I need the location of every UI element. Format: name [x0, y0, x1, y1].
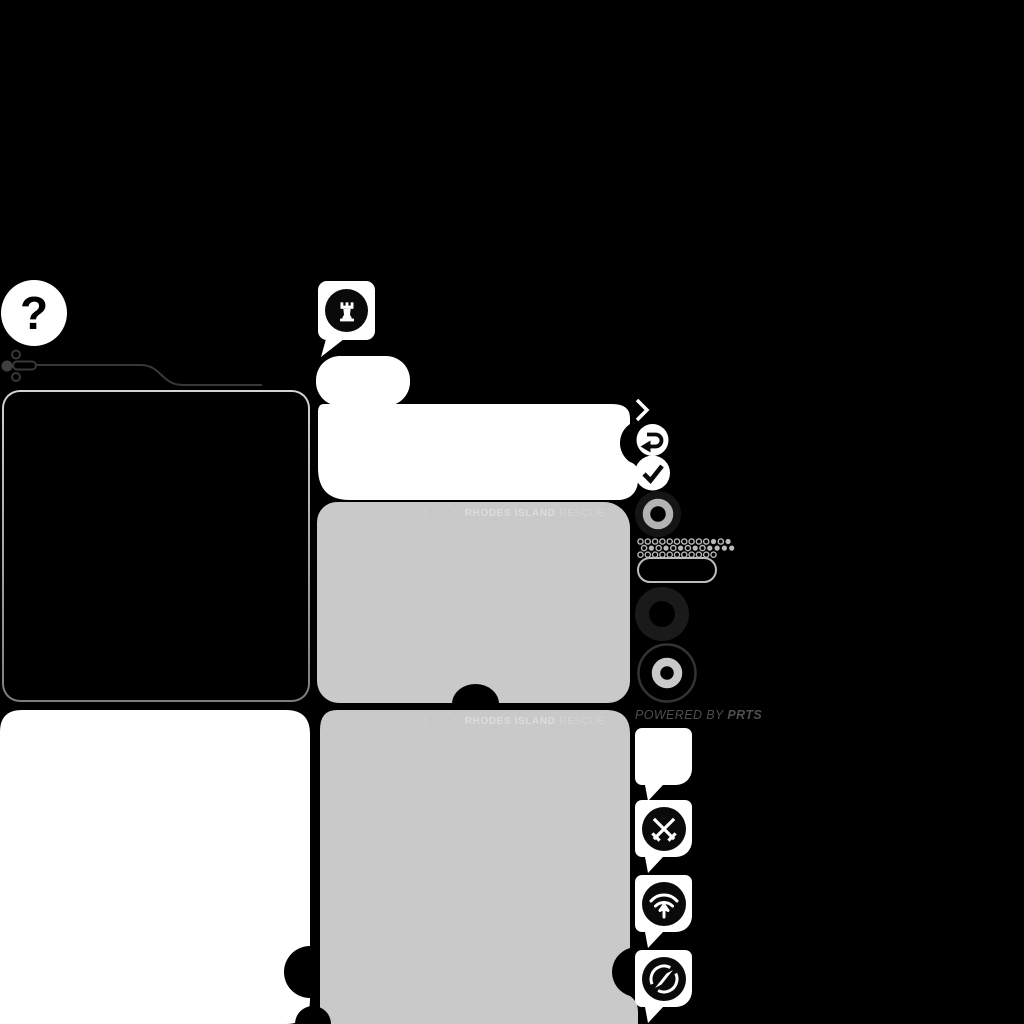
notification-bubble-network[interactable] [635, 875, 692, 932]
chevron-right-icon[interactable] [633, 396, 653, 424]
rescue-banner: : : : : : : : : : : : :RHODES ISLANDRESC… [317, 508, 630, 519]
help-label: ? [20, 286, 48, 340]
left-placeholder-panel[interactable] [2, 390, 310, 702]
rescue-banner-2: : : : : : : : : : : : :RHODES ISLANDRESC… [317, 716, 630, 727]
crossed-swords-icon [642, 807, 686, 851]
prts-brand: PRTS [727, 708, 762, 722]
banner-dots: : : : : : : : : : : : : [342, 508, 459, 519]
donut-button-small[interactable] [634, 490, 682, 538]
rescue-panel-top[interactable]: : : : : : : : : : : : :RHODES ISLANDRESC… [317, 502, 630, 703]
small-label-placeholder[interactable] [316, 356, 410, 406]
bottom-left-panel[interactable] [0, 710, 316, 1024]
bubble-tail [638, 930, 668, 950]
target-ring-button[interactable] [636, 642, 698, 704]
rescue-panel-bottom[interactable] [317, 710, 639, 1024]
donut-button-large[interactable] [634, 586, 690, 642]
wifi-upload-icon [642, 882, 686, 926]
notification-bubble-navigation[interactable] [635, 950, 692, 1007]
compass-icon [642, 957, 686, 1001]
confirm-button[interactable] [635, 455, 671, 491]
powered-by-label: POWERED BY PRTS [635, 708, 795, 722]
main-banner-placeholder[interactable] [316, 404, 640, 500]
pill-outline-button[interactable] [637, 557, 717, 583]
decor-connector [0, 346, 280, 392]
bubble-tail [638, 1005, 668, 1024]
bubble-tail [638, 855, 668, 875]
chess-rook-icon [325, 289, 368, 332]
undo-button[interactable] [636, 423, 670, 457]
game-screen: ? [0, 0, 1024, 1024]
help-button[interactable]: ? [1, 280, 67, 346]
notification-bubble-battle[interactable] [635, 800, 692, 857]
assistant-chat-bubble[interactable] [318, 281, 375, 340]
notification-bubble-empty[interactable] [635, 728, 692, 785]
